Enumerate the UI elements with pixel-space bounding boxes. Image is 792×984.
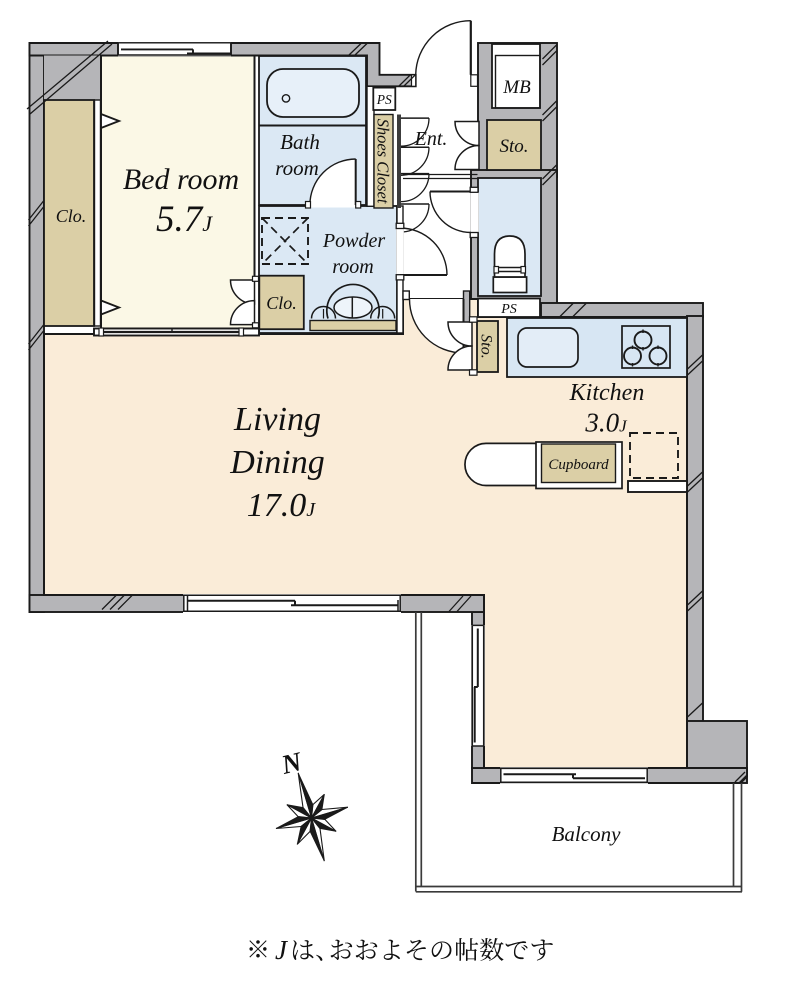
svg-text:room: room xyxy=(275,156,319,180)
svg-text:J: J xyxy=(275,935,289,965)
svg-text:room: room xyxy=(332,256,373,278)
svg-text:Bath: Bath xyxy=(280,130,320,154)
svg-text:Living: Living xyxy=(233,401,321,438)
svg-text:Bed room: Bed room xyxy=(123,163,239,196)
svg-text:Sto.: Sto. xyxy=(478,334,495,358)
svg-text:Sto.: Sto. xyxy=(499,136,528,157)
svg-text:Dining: Dining xyxy=(229,444,324,481)
svg-text:Shoes Closet: Shoes Closet xyxy=(374,119,393,204)
svg-text:PS: PS xyxy=(376,92,392,107)
svg-text:Balcony: Balcony xyxy=(552,822,621,846)
svg-text:Powder: Powder xyxy=(322,230,385,252)
svg-text:Clo.: Clo. xyxy=(266,293,297,313)
svg-text:Clo.: Clo. xyxy=(56,206,87,226)
svg-text:MB: MB xyxy=(502,77,531,98)
svg-text:Kitchen: Kitchen xyxy=(569,380,645,406)
svg-text:Cupboard: Cupboard xyxy=(548,457,609,473)
svg-text:17.0J: 17.0J xyxy=(247,487,317,524)
svg-text:PS: PS xyxy=(500,302,517,317)
